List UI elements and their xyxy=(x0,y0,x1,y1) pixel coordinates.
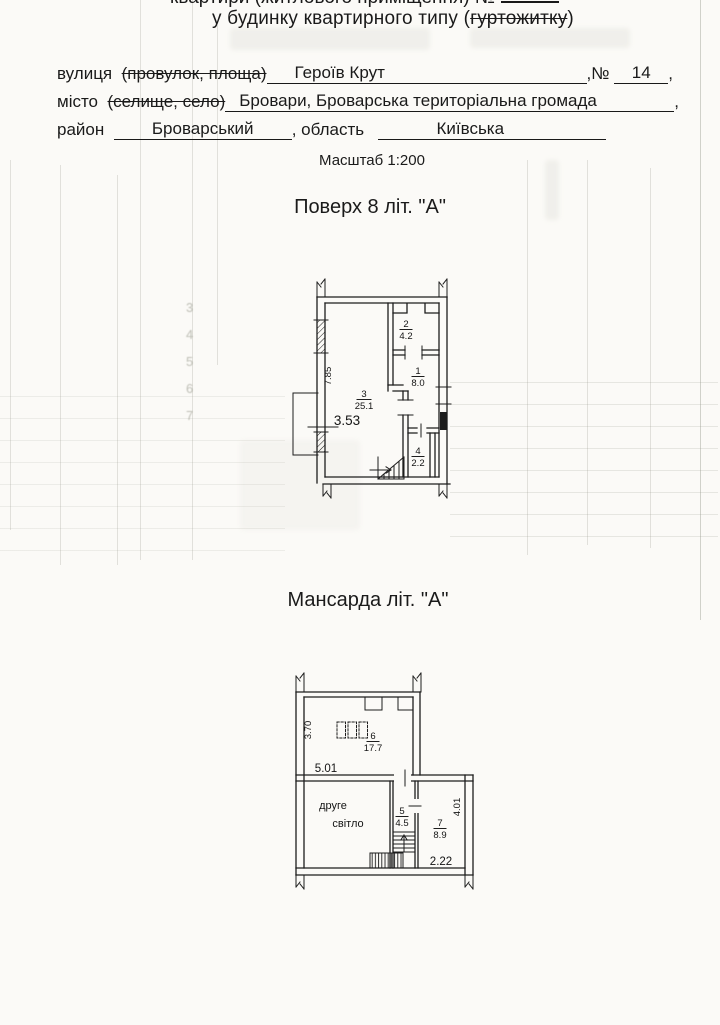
room6-number: 6 xyxy=(370,731,375,742)
city-label: місто xyxy=(57,92,98,111)
bleedthrough-digit: 4 xyxy=(186,327,202,342)
street-value: Героїв Крут xyxy=(267,63,587,84)
room7-number: 7 xyxy=(437,818,442,829)
mansard-plan-drawing: 6 17.7 5 4.5 7 8.9 друге світло 3.70 5.0… xyxy=(288,668,484,900)
room5-number: 5 xyxy=(399,806,404,817)
outer-walls xyxy=(296,692,473,875)
building-type-line: у будинку квартирного типу (гуртожитку) xyxy=(212,8,574,30)
stairs-symbol xyxy=(370,457,404,479)
room1-number: 1 xyxy=(415,366,420,377)
dim-width-top: 5.01 xyxy=(315,763,337,775)
roof-niches xyxy=(365,697,413,710)
room3-area: 25.1 xyxy=(355,401,374,412)
bleedthrough-digit: 7 xyxy=(186,408,202,423)
bleedthrough-smudge xyxy=(230,28,430,50)
building-type-suffix: ) xyxy=(567,8,574,29)
dimension-labels: 3.70 5.01 4.01 2.22 xyxy=(303,721,463,868)
stairs-direction-arrow xyxy=(370,467,391,473)
bleedthrough-line xyxy=(650,168,651,548)
city-struck-label: (селище, село) xyxy=(107,92,225,111)
interior-walls xyxy=(388,303,439,477)
bleedthrough-line xyxy=(527,160,528,555)
city-value: Бровари, Броварська територіальна громад… xyxy=(225,91,674,112)
room5-area: 4.5 xyxy=(395,818,408,829)
cropped-header-text: квартири (житлового приміщення) № xyxy=(170,0,495,8)
room7-area: 8.9 xyxy=(433,830,446,841)
room1-area: 8.0 xyxy=(411,378,424,389)
bleedthrough-table-rows xyxy=(450,382,718,550)
dim-height-left: 3.70 xyxy=(303,721,314,740)
right-wall-details xyxy=(436,387,451,430)
district-row: район Броварський, область Київська xyxy=(57,119,606,141)
room6-area: 17.7 xyxy=(364,743,383,754)
void-note: друге світло xyxy=(319,800,364,830)
oblast-value: Київська xyxy=(378,119,606,140)
district-value: Броварський xyxy=(114,119,292,140)
bleedthrough-line xyxy=(60,165,61,565)
void-note-line1: друге xyxy=(319,800,347,812)
building-type-prefix: у будинку квартирного типу ( xyxy=(212,8,470,29)
bleedthrough-digit: 6 xyxy=(186,381,202,396)
room4-number: 4 xyxy=(415,446,420,457)
bleedthrough-smudge xyxy=(470,28,630,48)
house-number-value: 14 xyxy=(614,63,668,84)
floor8-title: Поверх 8 літ. "А" xyxy=(20,196,720,219)
oblast-label: , область xyxy=(292,120,364,139)
street-label: вулиця xyxy=(57,64,112,83)
room2-area: 4.2 xyxy=(399,331,412,342)
scanned-document-page: 3 4 5 6 7 квартири (житлового приміщення… xyxy=(0,0,720,1025)
dim-height: 7.85 xyxy=(323,367,334,386)
street-row: вулиця (провулок, площа)Героїв Крут,№ 14… xyxy=(57,63,673,85)
balcony-outline xyxy=(293,393,318,455)
room3-number: 3 xyxy=(361,389,366,400)
building-type-struck: гуртожитку xyxy=(470,8,567,29)
cropped-header-underline xyxy=(501,0,559,3)
bleedthrough-digit: 5 xyxy=(186,354,202,369)
dim-height-right: 4.01 xyxy=(452,798,463,817)
bleedthrough-digit: 3 xyxy=(186,300,202,315)
wall-break-marks xyxy=(317,279,447,498)
street-struck-label: (провулок, площа) xyxy=(122,64,267,83)
void-note-line2: світло xyxy=(332,818,363,830)
bleedthrough-line xyxy=(10,160,11,530)
bleedthrough-table-rows xyxy=(0,396,285,564)
room-labels: 2 4.2 1 8.0 3 25.1 4 2.2 xyxy=(355,319,425,469)
mansard-title: Мансарда літ. "А" xyxy=(16,589,720,612)
house-number-label: ,№ xyxy=(587,64,610,83)
bleedthrough-line xyxy=(117,175,118,565)
hatched-landing xyxy=(370,853,403,868)
district-label: район xyxy=(57,120,104,139)
cropped-header-line: квартири (житлового приміщення) № xyxy=(170,0,610,8)
dashed-opening-marks xyxy=(337,722,368,738)
dimension-labels: 7.85 3.53 xyxy=(323,367,360,428)
bleedthrough-line xyxy=(700,0,701,620)
dim-width-bottom: 2.22 xyxy=(430,856,452,868)
city-row: місто (селище, село)Бровари, Броварська … xyxy=(57,91,679,113)
dim-width: 3.53 xyxy=(334,413,360,428)
bleedthrough-row-numbers: 3 4 5 6 7 xyxy=(186,300,202,423)
scale-note: Масштаб 1:200 xyxy=(24,152,720,169)
room4-area: 2.2 xyxy=(411,458,424,469)
comma: , xyxy=(668,64,673,83)
room2-number: 2 xyxy=(403,319,408,330)
floor8-plan-drawing: 2 4.2 1 8.0 3 25.1 4 2.2 7.85 3.53 xyxy=(290,276,454,500)
comma: , xyxy=(674,92,679,111)
